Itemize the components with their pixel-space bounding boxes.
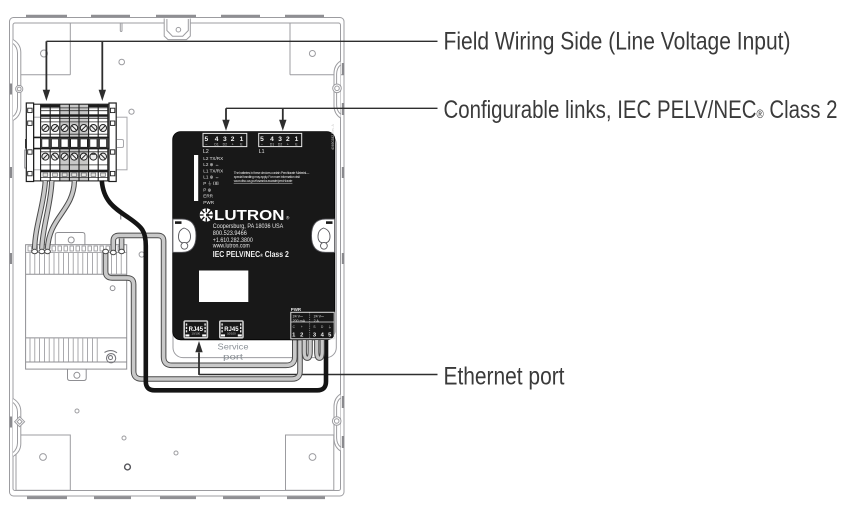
svg-text:–: – <box>261 143 263 147</box>
svg-text:port: port <box>223 353 244 362</box>
svg-text:IEC PELV/NEC® Class 2: IEC PELV/NEC® Class 2 <box>213 249 289 259</box>
svg-text:S: S <box>313 325 315 329</box>
svg-text:D1: D1 <box>270 143 274 147</box>
svg-text:Ethernet port: Ethernet port <box>444 363 565 391</box>
svg-text:L1 TX/RX: L1 TX/RX <box>203 168 223 173</box>
svg-text:2: 2 <box>300 333 303 339</box>
svg-text:L2 TX/RX: L2 TX/RX <box>203 156 223 161</box>
svg-text:D1: D1 <box>214 143 218 147</box>
svg-text:L1 ⊕ ↔: L1 ⊕ ↔ <box>203 175 219 180</box>
svg-text:L1: L1 <box>259 149 265 155</box>
svg-text:PWR: PWR <box>291 307 302 312</box>
svg-text:Service: Service <box>218 343 250 352</box>
svg-text:Field Wiring Side (Line Voltag: Field Wiring Side (Line Voltage Input) <box>444 28 791 56</box>
svg-text:D2: D2 <box>223 143 227 147</box>
svg-text:D2: D2 <box>278 143 282 147</box>
svg-text:ERR: ERR <box>203 194 213 199</box>
svg-text:+: + <box>232 143 234 147</box>
svg-text:–: – <box>205 143 207 147</box>
svg-text:P ⊕: P ⊕ <box>203 187 211 192</box>
svg-text:www.dtsc.ca.gov/hazardouswaste: www.dtsc.ca.gov/hazardouswaste/perchlora… <box>234 179 293 183</box>
svg-text:Coopersburg, PA 18036 USA: Coopersburg, PA 18036 USA <box>213 223 284 230</box>
svg-text:L2: L2 <box>203 149 209 155</box>
svg-text:Configurable links, IEC PELV/N: Configurable links, IEC PELV/NEC® Class … <box>444 96 838 124</box>
svg-text:2 A: 2 A <box>314 319 320 323</box>
svg-text:+: + <box>301 325 303 329</box>
svg-text:L2 ⊕ ↔: L2 ⊕ ↔ <box>203 162 219 167</box>
svg-text:+: + <box>287 143 289 147</box>
svg-text:PWR: PWR <box>203 200 214 205</box>
svg-text:P ⏚ ⌷⌷: P ⏚ ⌷⌷ <box>203 180 219 186</box>
svg-text:10/100: 10/100 <box>227 331 236 335</box>
svg-text:10/100: 10/100 <box>192 331 201 335</box>
svg-text:⏚: ⏚ <box>328 324 331 329</box>
svg-text:LUTRON: LUTRON <box>214 207 285 224</box>
svg-text:40690282 Rev. A: 40690282 Rev. A <box>331 123 335 150</box>
svg-text:200 mA: 200 mA <box>293 319 306 323</box>
